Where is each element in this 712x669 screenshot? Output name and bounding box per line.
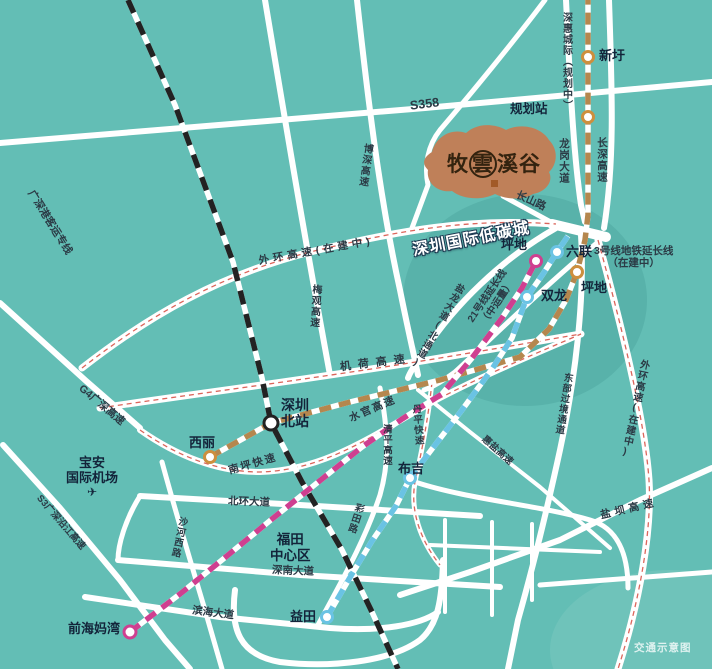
station-dot-yitian bbox=[322, 612, 333, 623]
station-dot-liulian bbox=[552, 247, 563, 258]
station-dot-xinwei bbox=[583, 52, 594, 63]
map-canvas bbox=[0, 0, 712, 669]
station-dot-xili bbox=[205, 452, 216, 463]
station-dot-shuanglong bbox=[522, 292, 533, 303]
project-blob bbox=[424, 125, 556, 198]
station-dot-pingdi-east bbox=[572, 267, 583, 278]
station-dot-pingdi-west bbox=[531, 256, 542, 267]
station-dot-buji bbox=[405, 473, 416, 484]
station-dot-planned bbox=[583, 112, 594, 123]
station-dot-qianhai-mawan bbox=[124, 626, 136, 638]
traffic-sketch-map: { "map_title": "交通示意图", "logo": {"name":… bbox=[0, 0, 712, 669]
station-dot-shenzhen-north bbox=[264, 416, 278, 430]
